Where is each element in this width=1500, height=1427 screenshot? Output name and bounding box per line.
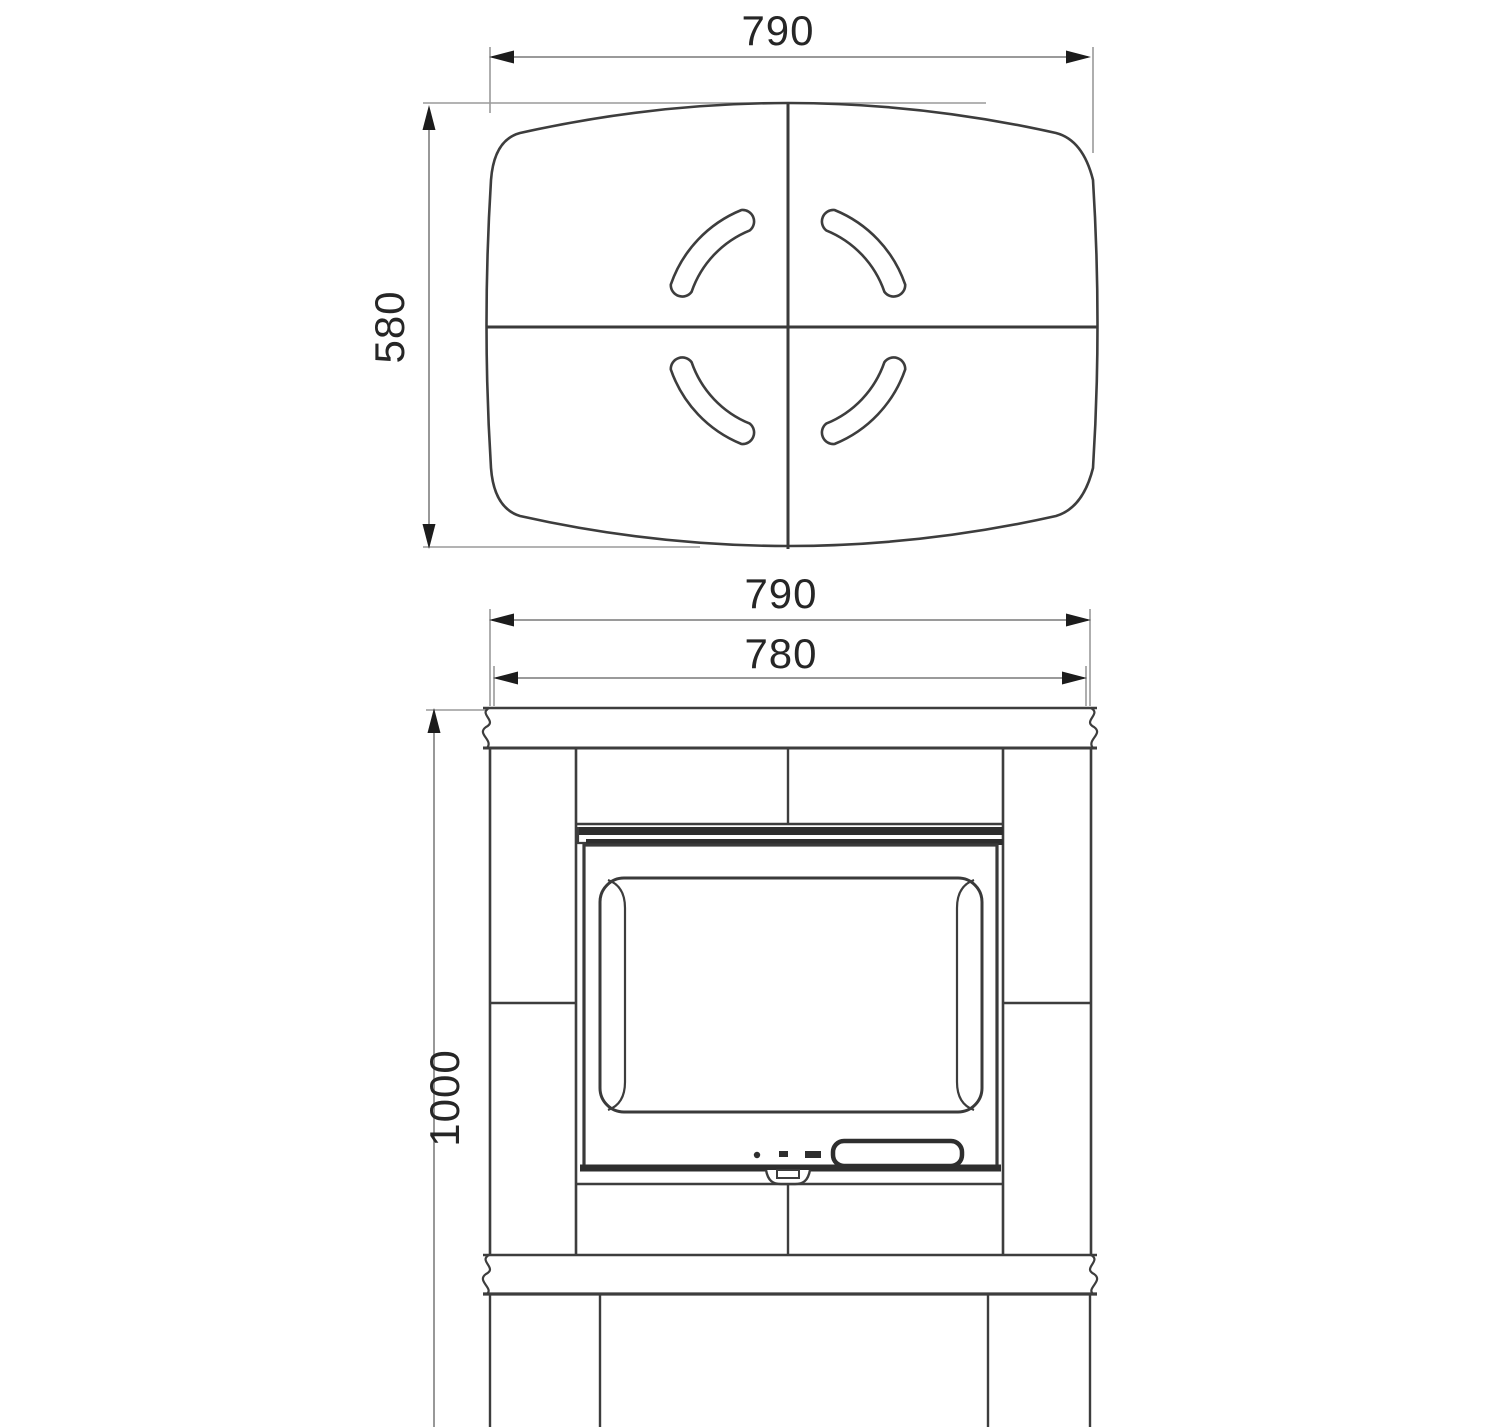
- rail-upper-bar: [578, 827, 1003, 835]
- door-glass-window: [600, 878, 982, 1112]
- arrowhead-left-icon: [489, 51, 514, 64]
- technical-drawing-svg: 790 580 790: [0, 0, 1500, 1427]
- top-tile-row-joints: [576, 748, 1003, 824]
- dimension-height: 1000: [421, 708, 488, 1427]
- dim-top-width-label: 790: [741, 7, 814, 54]
- top-slab-break-left: [483, 708, 490, 748]
- firebox-top-rail: [578, 827, 1003, 845]
- stove-dimension-drawing: 790 580 790: [0, 0, 1500, 1427]
- arrowhead-right-icon: [1066, 51, 1091, 64]
- front-view: 790 780 1000: [421, 570, 1097, 1427]
- bottom-slab-break-right: [1090, 1255, 1097, 1294]
- dim-depth-label: 580: [366, 290, 413, 363]
- plinth-lines: [490, 1294, 1090, 1427]
- arrowhead-up-icon: [428, 708, 441, 733]
- top-slab: [483, 708, 1097, 748]
- arrowhead-up-icon: [423, 105, 436, 130]
- fire-door: [580, 845, 1001, 1184]
- arrowhead-right-icon: [1066, 614, 1091, 627]
- arrowhead-left-icon: [489, 614, 514, 627]
- door-latch-plate: [777, 1170, 799, 1178]
- dim-height-label: 1000: [421, 1049, 468, 1146]
- arrowhead-right-icon: [1062, 672, 1087, 685]
- arrowhead-left-icon: [493, 672, 518, 685]
- door-handle: [833, 1141, 962, 1166]
- dim-body-width-label: 780: [744, 630, 817, 677]
- lower-tile-row-joints: [576, 1184, 1003, 1255]
- air-control-mark-large-icon: [805, 1151, 821, 1158]
- dimension-top-depth: 580: [366, 105, 436, 549]
- air-control-dot-icon: [754, 1152, 760, 1158]
- bottom-slab: [483, 1255, 1097, 1294]
- arrowhead-down-icon: [423, 524, 436, 549]
- dim-front-top-width-label: 790: [744, 570, 817, 617]
- top-view: 790 580: [366, 7, 1098, 549]
- dimension-front-body-width: 780: [493, 630, 1087, 706]
- bottom-slab-break-left: [483, 1255, 490, 1294]
- top-slab-break-right: [1090, 708, 1097, 748]
- air-control-mark-small-icon: [779, 1151, 788, 1157]
- top-plate-outline: [487, 103, 1098, 546]
